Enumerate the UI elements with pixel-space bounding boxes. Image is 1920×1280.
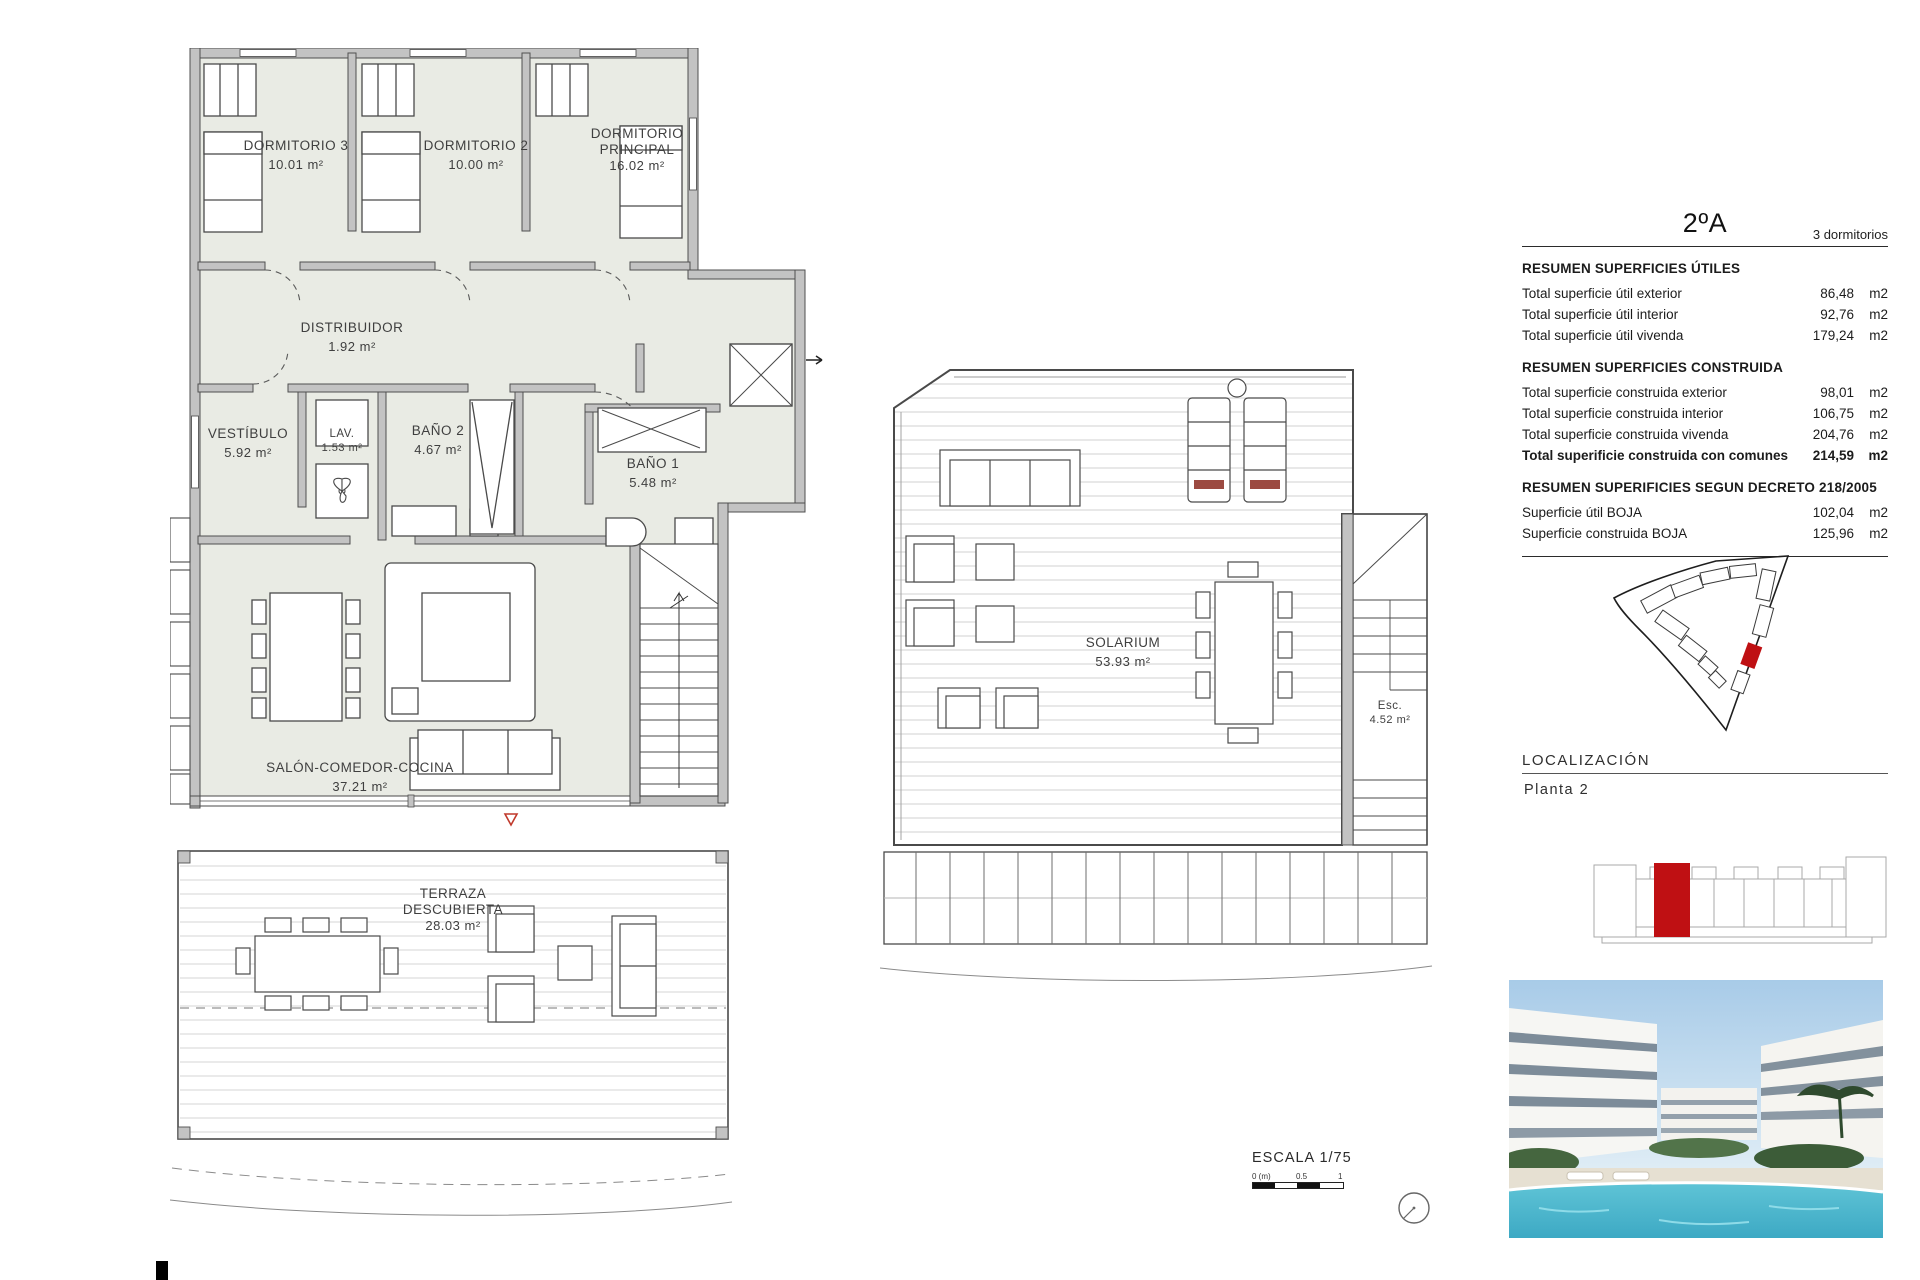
section-heading: RESUMEN SUPERFICIES CONSTRUIDA [1522, 360, 1888, 375]
surface-label: Total superficie construida exterior [1522, 382, 1796, 403]
surface-row: Total superficie útil interior 92,76 m2 [1522, 304, 1888, 325]
main-floor-plan: DORMITORIO 3 10.01 m² DORMITORIO 2 10.00… [170, 48, 830, 1240]
bedrooms-note: 3 dormitorios [1813, 227, 1888, 242]
surface-unit: m2 [1854, 283, 1888, 304]
localizacion-heading: LOCALIZACIÓN [1522, 752, 1888, 774]
room-name: Esc. [1370, 700, 1411, 713]
surface-value: 92,76 [1796, 304, 1854, 325]
divider [1522, 246, 1888, 247]
room-area: 1.53 m² [322, 442, 363, 455]
room-label-lav: LAV. 1.53 m² [322, 428, 363, 455]
photo-building-left [1509, 1008, 1657, 1166]
surface-value: 125,96 [1796, 523, 1854, 544]
surface-value: 204,76 [1796, 424, 1854, 445]
surface-label: Total superificie construida con comunes [1522, 445, 1796, 466]
surface-value: 214,59 [1796, 445, 1854, 466]
surface-value: 98,01 [1796, 382, 1854, 403]
photo-lounger [1613, 1172, 1649, 1180]
section-heading: RESUMEN SUPERIFICIES SEGUN DECRETO 218/2… [1522, 480, 1888, 495]
level-marker-icon [505, 814, 517, 825]
localizacion-floor: Planta 2 [1524, 782, 1589, 798]
room-area: 53.93 m² [1086, 654, 1161, 670]
scale-one: 1 [1338, 1172, 1342, 1181]
surface-label: Total superficie útil exterior [1522, 283, 1796, 304]
room-name: DISTRIBUIDOR [301, 320, 404, 336]
project-photo [1509, 980, 1883, 1238]
room-name: DORMITORIO 3 [244, 138, 349, 154]
surface-label: Total superficie construida interior [1522, 403, 1796, 424]
unit-title: 2ºA [1683, 208, 1727, 239]
room-name: DORMITORIO 2 [424, 138, 529, 154]
entry-arrow-icon [806, 356, 822, 364]
scale-bar: 0 (m) 0.5 1 [1252, 1172, 1362, 1188]
room-name: SOLARIUM [1086, 635, 1161, 651]
sheet-corner-mark [156, 1261, 168, 1280]
surface-unit: m2 [1854, 424, 1888, 445]
solarium-stairs [1342, 514, 1427, 845]
room-area: 37.21 m² [266, 779, 454, 795]
surface-unit: m2 [1854, 304, 1888, 325]
scale-bar-graphic [1252, 1182, 1344, 1189]
room-label-dormitorio-2: DORMITORIO 2 10.00 m² [424, 138, 529, 173]
section-heading: RESUMEN SUPERFICIES ÚTILES [1522, 261, 1888, 276]
room-area: 10.00 m² [424, 157, 529, 173]
surface-value: 106,75 [1796, 403, 1854, 424]
surface-value: 102,04 [1796, 502, 1854, 523]
solarium-floor-plan: SOLARIUM 53.93 m² Esc. 4.52 m² [880, 360, 1440, 1000]
room-label-solarium: SOLARIUM 53.93 m² [1086, 635, 1161, 670]
building-elevation [1592, 851, 1888, 949]
room-label-esc: Esc. 4.52 m² [1370, 700, 1411, 727]
left-shelf-strip [170, 518, 190, 804]
surface-unit: m2 [1854, 403, 1888, 424]
surface-value: 86,48 [1796, 283, 1854, 304]
north-indicator-icon [1394, 1188, 1434, 1228]
stairs [640, 544, 718, 796]
summary-header: 2ºA 3 dormitorios [1522, 208, 1888, 246]
surface-unit: m2 [1854, 325, 1888, 346]
surface-row: Superficie construida BOJA 125,96 m2 [1522, 523, 1888, 544]
photo-building-center [1661, 1088, 1757, 1140]
surface-row: Total superficie útil exterior 86,48 m2 [1522, 283, 1888, 304]
surface-label: Total superficie construida vivenda [1522, 424, 1796, 445]
surface-row: Superficie útil BOJA 102,04 m2 [1522, 502, 1888, 523]
solarium-plan-drawing [880, 360, 1440, 1000]
surface-row: Total superficie útil vivenda 179,24 m2 [1522, 325, 1888, 346]
sliding-door-band [200, 795, 630, 807]
lower-band [884, 852, 1427, 944]
surface-label: Total superficie útil interior [1522, 304, 1796, 325]
room-label-bano-1: BAÑO 1 5.48 m² [627, 456, 680, 491]
room-name: VESTÍBULO [208, 426, 288, 442]
room-name: LAV. [322, 428, 363, 441]
site-plan-map [1604, 552, 1804, 742]
surface-unit: m2 [1854, 445, 1888, 466]
room-label-dormitorio-3: DORMITORIO 3 10.01 m² [244, 138, 349, 173]
room-label-distribuidor: DISTRIBUIDOR 1.92 m² [301, 320, 404, 355]
main-floor-plan-drawing [170, 48, 830, 1240]
room-name: SALÓN-COMEDOR-COCINA [266, 760, 454, 776]
room-area: 5.92 m² [208, 445, 288, 461]
room-name: BAÑO 1 [627, 456, 680, 472]
surface-value: 179,24 [1796, 325, 1854, 346]
room-name: TERRAZA DESCUBIERTA [393, 886, 513, 918]
room-label-dormitorio-principal: DORMITORIO PRINCIPAL 16.02 m² [581, 126, 693, 174]
room-area: 4.52 m² [1370, 714, 1411, 727]
surface-unit: m2 [1854, 502, 1888, 523]
surface-row: Total superficie construida interior 106… [1522, 403, 1888, 424]
room-name: BAÑO 2 [412, 423, 465, 439]
elevation-outline [1594, 857, 1886, 943]
elevator-shaft [730, 344, 822, 406]
ground-lines [170, 1168, 732, 1215]
surface-label: Total superficie útil vivenda [1522, 325, 1796, 346]
surface-row: Total superficie construida exterior 98,… [1522, 382, 1888, 403]
surface-label: Superficie construida BOJA [1522, 523, 1796, 544]
room-label-salon: SALÓN-COMEDOR-COCINA 37.21 m² [266, 760, 454, 795]
room-label-terraza: TERRAZA DESCUBIERTA 28.03 m² [393, 886, 513, 934]
room-area: 16.02 m² [581, 158, 693, 174]
room-label-vestibulo: VESTÍBULO 5.92 m² [208, 426, 288, 461]
scale-title: ESCALA 1/75 [1252, 1150, 1352, 1166]
surface-label: Superficie útil BOJA [1522, 502, 1796, 523]
scale-half: 0.5 [1296, 1172, 1307, 1181]
surface-unit: m2 [1854, 523, 1888, 544]
surface-row: Total superficie construida vivenda 204,… [1522, 424, 1888, 445]
room-area: 4.67 m² [412, 442, 465, 458]
room-name: DORMITORIO PRINCIPAL [581, 126, 693, 158]
surface-unit: m2 [1854, 382, 1888, 403]
room-area: 5.48 m² [627, 475, 680, 491]
surface-summary-table: 2ºA 3 dormitorios RESUMEN SUPERFICIES ÚT… [1522, 208, 1888, 563]
room-area: 1.92 m² [301, 339, 404, 355]
surface-row-total: Total superificie construida con comunes… [1522, 445, 1888, 466]
room-label-bano-2: BAÑO 2 4.67 m² [412, 423, 465, 458]
ground-line [880, 966, 1432, 981]
photo-lounger [1567, 1172, 1603, 1180]
room-area: 28.03 m² [393, 918, 513, 934]
highlighted-unit-elevation [1654, 863, 1690, 937]
scale-zero: 0 (m) [1252, 1172, 1271, 1181]
room-area: 10.01 m² [244, 157, 349, 173]
solarium-furniture [906, 379, 1292, 743]
